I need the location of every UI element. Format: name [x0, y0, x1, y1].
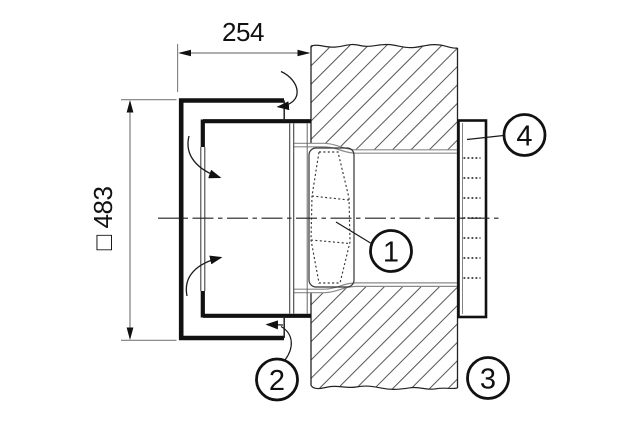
dim-width-arrow-right	[298, 50, 311, 57]
wall-hatch-lower	[311, 286, 458, 389]
callout-2-leader	[281, 327, 291, 361]
callout-3-label: 3	[480, 364, 496, 396]
cover-hood	[181, 101, 284, 339]
dim-height-label: □ 483	[88, 187, 118, 251]
dimension-height: □ 483	[88, 100, 177, 341]
dim-height-arrow-top	[127, 100, 134, 113]
dim-width-label: 254	[222, 17, 264, 47]
technical-drawing: 254 □ 483 1 2 3 4	[0, 0, 640, 423]
dim-width-arrow-left	[178, 50, 191, 57]
drawing-canvas: 254 □ 483 1 2 3 4	[0, 0, 640, 423]
fan-impeller	[311, 152, 350, 283]
dimension-width: 254	[178, 17, 311, 92]
callout-1: 1	[336, 222, 412, 272]
cover-outline	[181, 101, 284, 339]
callout-3: 3	[468, 358, 509, 399]
callout-4-label: 4	[516, 121, 532, 153]
wall-hatch-upper	[311, 44, 458, 150]
dim-height-arrow-bottom	[127, 328, 134, 341]
callout-1-label: 1	[383, 237, 399, 269]
callout-2-label: 2	[269, 365, 285, 397]
airflow-arrows	[186, 72, 297, 326]
airflow-arrow-bottom-gap	[267, 325, 283, 326]
wall-section	[311, 44, 458, 389]
airflow-arrow-inlet-lower	[186, 258, 221, 297]
